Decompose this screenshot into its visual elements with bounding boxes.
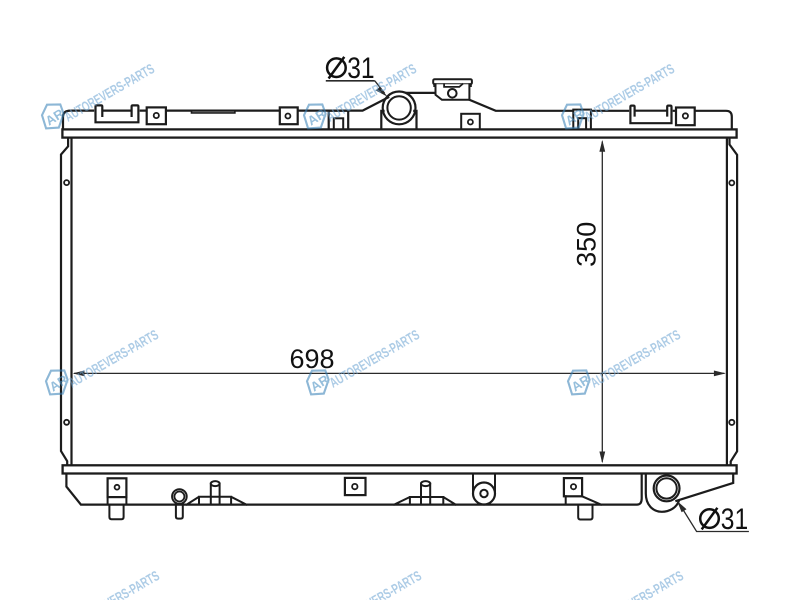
svg-text:698: 698 — [289, 344, 334, 374]
svg-text:350: 350 — [572, 222, 602, 267]
svg-text:31: 31 — [347, 51, 374, 85]
svg-text:31: 31 — [721, 502, 748, 536]
